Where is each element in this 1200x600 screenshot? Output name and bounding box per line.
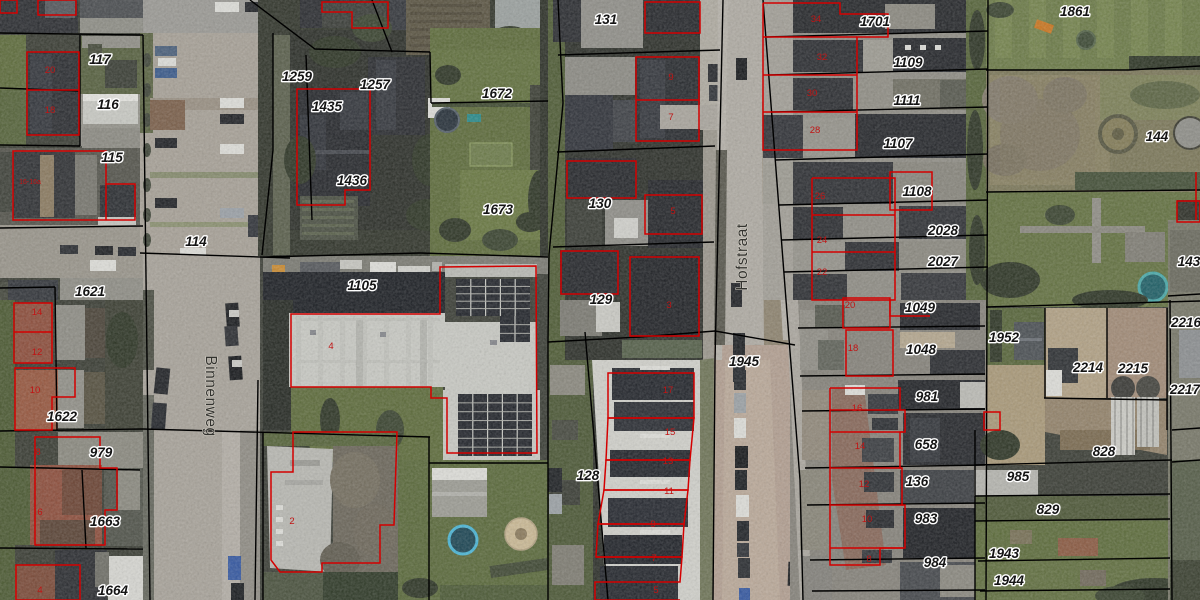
svg-text:1621: 1621 [75, 284, 105, 299]
svg-text:6: 6 [37, 507, 42, 518]
svg-text:1861: 1861 [1060, 4, 1090, 19]
svg-text:2027: 2027 [927, 254, 960, 269]
svg-text:7: 7 [651, 553, 656, 564]
svg-text:2214: 2214 [1072, 360, 1104, 375]
svg-text:22: 22 [817, 267, 828, 278]
svg-text:1701: 1701 [860, 14, 890, 29]
svg-text:2217: 2217 [1169, 382, 1200, 397]
svg-text:14: 14 [32, 307, 43, 318]
svg-text:136: 136 [906, 474, 929, 489]
svg-text:15: 15 [665, 427, 676, 438]
svg-text:1257: 1257 [360, 77, 392, 92]
svg-text:983: 983 [915, 511, 938, 526]
svg-text:3: 3 [666, 300, 671, 311]
svg-text:1664: 1664 [98, 583, 129, 598]
svg-text:984: 984 [924, 555, 947, 570]
svg-text:144: 144 [1146, 129, 1169, 144]
svg-text:Binnenweg: Binnenweg [202, 355, 219, 436]
svg-text:2215: 2215 [1117, 361, 1149, 376]
svg-text:829: 829 [1037, 502, 1060, 517]
svg-text:5: 5 [653, 585, 658, 596]
svg-text:115: 115 [101, 150, 123, 165]
svg-text:1435: 1435 [312, 99, 343, 114]
svg-text:1952: 1952 [989, 330, 1020, 345]
svg-text:1436: 1436 [337, 173, 368, 188]
svg-text:1111: 1111 [893, 93, 920, 108]
svg-text:143: 143 [1178, 254, 1200, 269]
svg-text:2028: 2028 [927, 223, 959, 238]
svg-text:979: 979 [90, 445, 113, 460]
svg-text:8: 8 [866, 554, 871, 565]
svg-text:8: 8 [35, 447, 40, 458]
svg-text:129: 129 [590, 292, 613, 307]
svg-text:1943: 1943 [989, 546, 1020, 561]
svg-text:1048: 1048 [906, 342, 937, 357]
svg-text:1663: 1663 [90, 514, 121, 529]
svg-text:1105: 1105 [347, 278, 377, 293]
svg-text:130: 130 [589, 196, 612, 211]
svg-text:12: 12 [32, 347, 43, 358]
svg-text:7: 7 [668, 112, 673, 123]
svg-text:1259: 1259 [282, 69, 313, 84]
svg-text:18: 18 [45, 105, 56, 116]
svg-text:20: 20 [845, 300, 856, 311]
svg-text:5: 5 [670, 206, 675, 217]
svg-text:18: 18 [848, 343, 859, 354]
svg-text:131: 131 [595, 12, 618, 27]
svg-text:1672: 1672 [482, 86, 513, 101]
svg-text:114: 114 [185, 234, 207, 249]
svg-text:1107: 1107 [883, 136, 914, 151]
svg-text:16-16a: 16-16a [19, 179, 41, 186]
svg-text:658: 658 [915, 437, 938, 452]
svg-text:1622: 1622 [47, 409, 78, 424]
svg-text:116: 116 [97, 97, 119, 112]
svg-text:10: 10 [30, 385, 41, 396]
svg-text:1049: 1049 [905, 300, 936, 315]
svg-text:9: 9 [668, 72, 673, 83]
svg-text:117: 117 [89, 52, 112, 67]
svg-text:20: 20 [45, 65, 56, 76]
svg-text:981: 981 [916, 389, 939, 404]
svg-text:11: 11 [664, 486, 674, 497]
svg-text:16: 16 [852, 403, 863, 414]
svg-text:14: 14 [855, 441, 866, 452]
svg-text:4: 4 [37, 585, 42, 596]
svg-text:17: 17 [663, 385, 674, 396]
svg-text:2: 2 [289, 516, 294, 527]
svg-text:1109: 1109 [893, 55, 923, 70]
svg-text:9: 9 [650, 519, 655, 530]
svg-text:985: 985 [1007, 469, 1030, 484]
svg-text:28: 28 [810, 125, 821, 136]
svg-text:24: 24 [817, 235, 828, 246]
svg-text:1108: 1108 [902, 184, 932, 199]
svg-text:1944: 1944 [994, 573, 1025, 588]
svg-text:30: 30 [807, 88, 818, 99]
svg-text:13: 13 [663, 456, 674, 467]
svg-text:12: 12 [859, 479, 870, 490]
svg-text:1673: 1673 [483, 202, 514, 217]
svg-text:10: 10 [862, 514, 873, 525]
svg-text:34: 34 [811, 14, 822, 25]
svg-text:828: 828 [1093, 444, 1116, 459]
svg-text:1945: 1945 [729, 354, 760, 369]
svg-text:128: 128 [577, 468, 600, 483]
svg-text:Hofstraat: Hofstraat [734, 223, 751, 291]
svg-text:4: 4 [328, 341, 333, 352]
svg-text:2216: 2216 [1170, 315, 1200, 330]
svg-text:32: 32 [817, 52, 828, 63]
svg-text:26: 26 [815, 191, 826, 202]
